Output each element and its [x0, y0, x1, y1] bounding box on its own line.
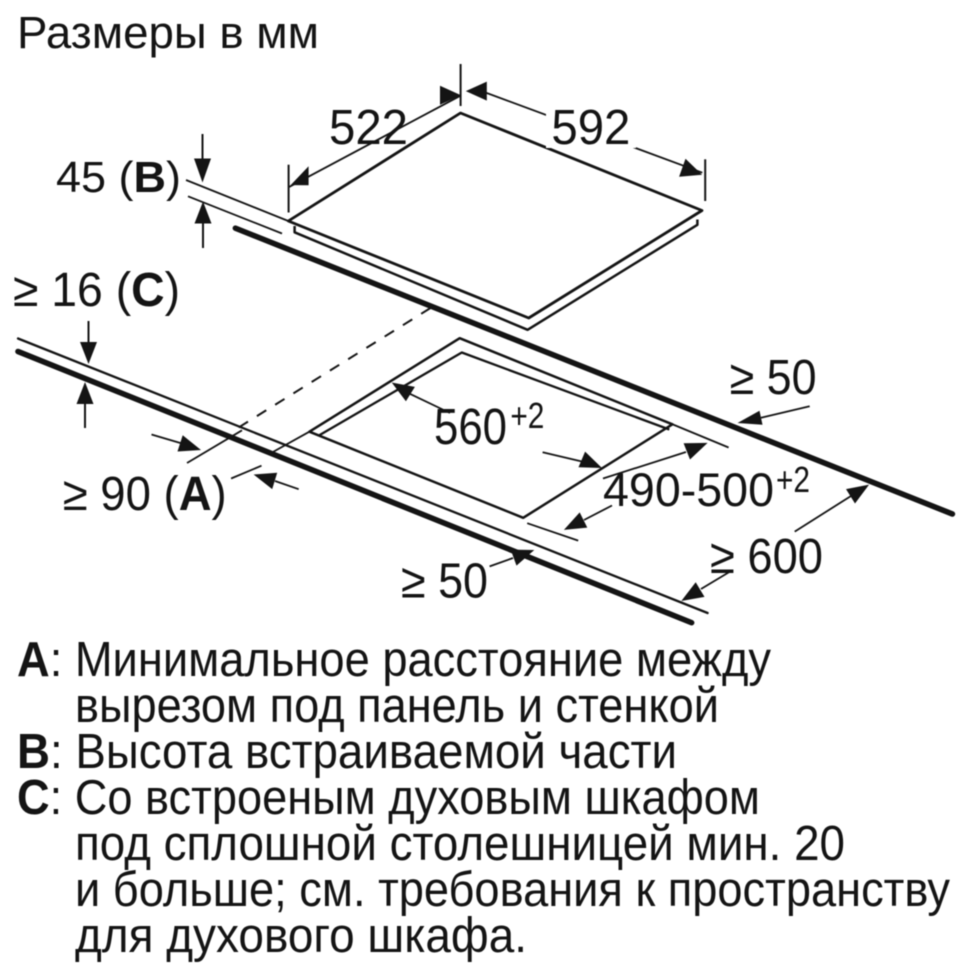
- svg-text:для духового шкафа.: для духового шкафа.: [75, 909, 527, 963]
- svg-text:45 (B): 45 (B): [56, 153, 181, 202]
- svg-text:592: 592: [551, 101, 630, 155]
- svg-text:522: 522: [329, 101, 408, 155]
- svg-text:560: 560: [434, 398, 507, 455]
- svg-text:Размеры в мм: Размеры в мм: [17, 7, 319, 58]
- svg-text:≥ 16 (C): ≥ 16 (C): [13, 264, 180, 317]
- svg-text:≥ 90 (A): ≥ 90 (A): [63, 468, 227, 521]
- svg-text:490-500: 490-500: [603, 464, 774, 517]
- svg-text:+2: +2: [776, 459, 810, 500]
- svg-text:≥ 600: ≥ 600: [710, 530, 823, 584]
- svg-text:+2: +2: [510, 395, 544, 436]
- svg-text:≥ 50: ≥ 50: [401, 555, 488, 609]
- svg-text:≥ 50: ≥ 50: [730, 351, 817, 405]
